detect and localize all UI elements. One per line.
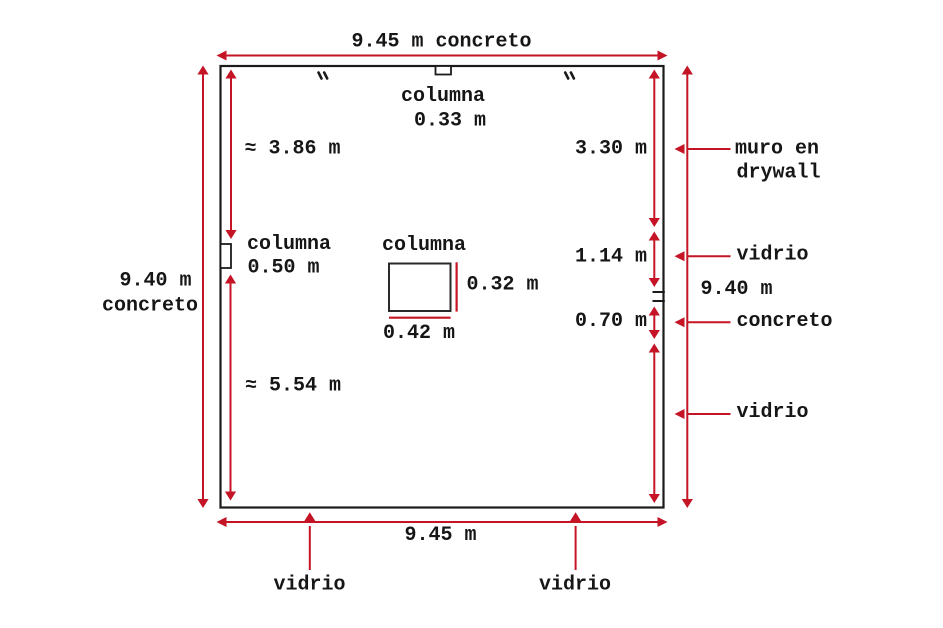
svg-text:concreto: concreto: [102, 295, 198, 318]
svg-text:vidrio: vidrio: [737, 401, 809, 424]
svg-text:0.32 m: 0.32 m: [467, 274, 539, 297]
svg-text:vidrio: vidrio: [274, 574, 346, 597]
svg-text:3.30 m: 3.30 m: [575, 138, 647, 161]
svg-text:columna: columna: [382, 234, 466, 257]
svg-text:0.42 m: 0.42 m: [383, 322, 455, 345]
svg-text:9.40 m: 9.40 m: [701, 278, 773, 301]
svg-text:columna: columna: [247, 233, 331, 256]
svg-text:0.50 m: 0.50 m: [248, 257, 320, 280]
svg-text:1.14 m: 1.14 m: [575, 245, 647, 268]
svg-text:≈ 3.86 m: ≈ 3.86 m: [245, 138, 341, 161]
svg-text:≈ 5.54 m: ≈ 5.54 m: [245, 375, 341, 398]
svg-text:9.45 m: 9.45 m: [405, 524, 477, 547]
svg-text:drywall: drywall: [737, 162, 821, 185]
svg-text:columna: columna: [401, 85, 485, 108]
svg-text:0.70 m: 0.70 m: [575, 310, 647, 333]
svg-text:vidrio: vidrio: [539, 574, 611, 597]
svg-text:9.40 m: 9.40 m: [120, 270, 192, 293]
svg-text:muro en: muro en: [735, 138, 819, 161]
svg-text:9.45 m concreto: 9.45 m concreto: [352, 31, 532, 54]
svg-text:concreto: concreto: [737, 310, 833, 333]
svg-text:0.33 m: 0.33 m: [414, 110, 486, 133]
svg-text:vidrio: vidrio: [737, 244, 809, 267]
